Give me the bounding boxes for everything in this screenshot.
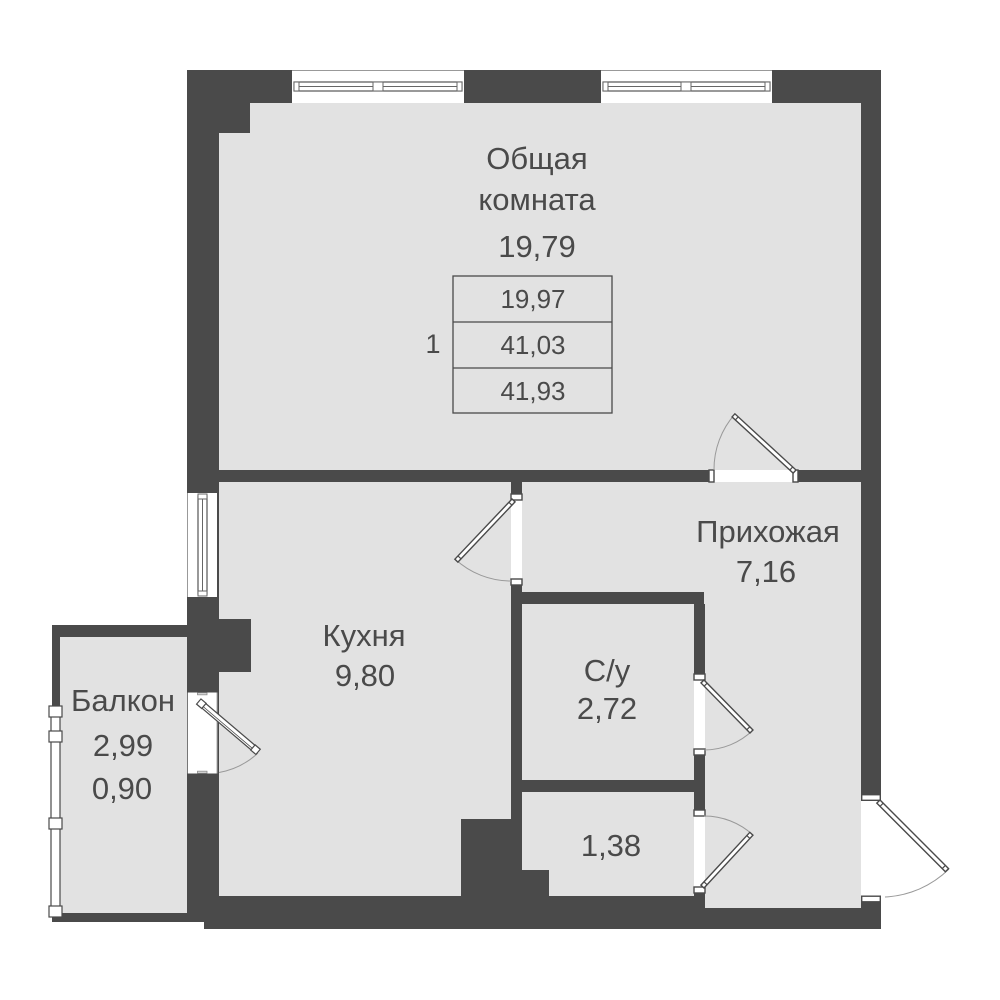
svg-text:1,38: 1,38 xyxy=(581,828,641,863)
svg-text:19,97: 19,97 xyxy=(500,284,565,314)
svg-text:7,16: 7,16 xyxy=(736,554,796,589)
svg-text:Балкон: Балкон xyxy=(71,683,175,718)
svg-text:0,90: 0,90 xyxy=(92,771,152,806)
svg-text:41,03: 41,03 xyxy=(500,330,565,360)
svg-text:2,72: 2,72 xyxy=(577,691,637,726)
svg-text:9,80: 9,80 xyxy=(335,658,395,693)
svg-text:С/у: С/у xyxy=(584,653,631,688)
svg-text:2,99: 2,99 xyxy=(93,728,153,763)
svg-text:комната: комната xyxy=(478,182,596,217)
svg-text:Прихожая: Прихожая xyxy=(696,514,840,549)
svg-text:Общая: Общая xyxy=(486,141,587,176)
svg-text:1: 1 xyxy=(425,329,440,359)
svg-text:41,93: 41,93 xyxy=(500,376,565,406)
svg-text:19,79: 19,79 xyxy=(498,229,576,264)
svg-text:Кухня: Кухня xyxy=(323,618,406,653)
